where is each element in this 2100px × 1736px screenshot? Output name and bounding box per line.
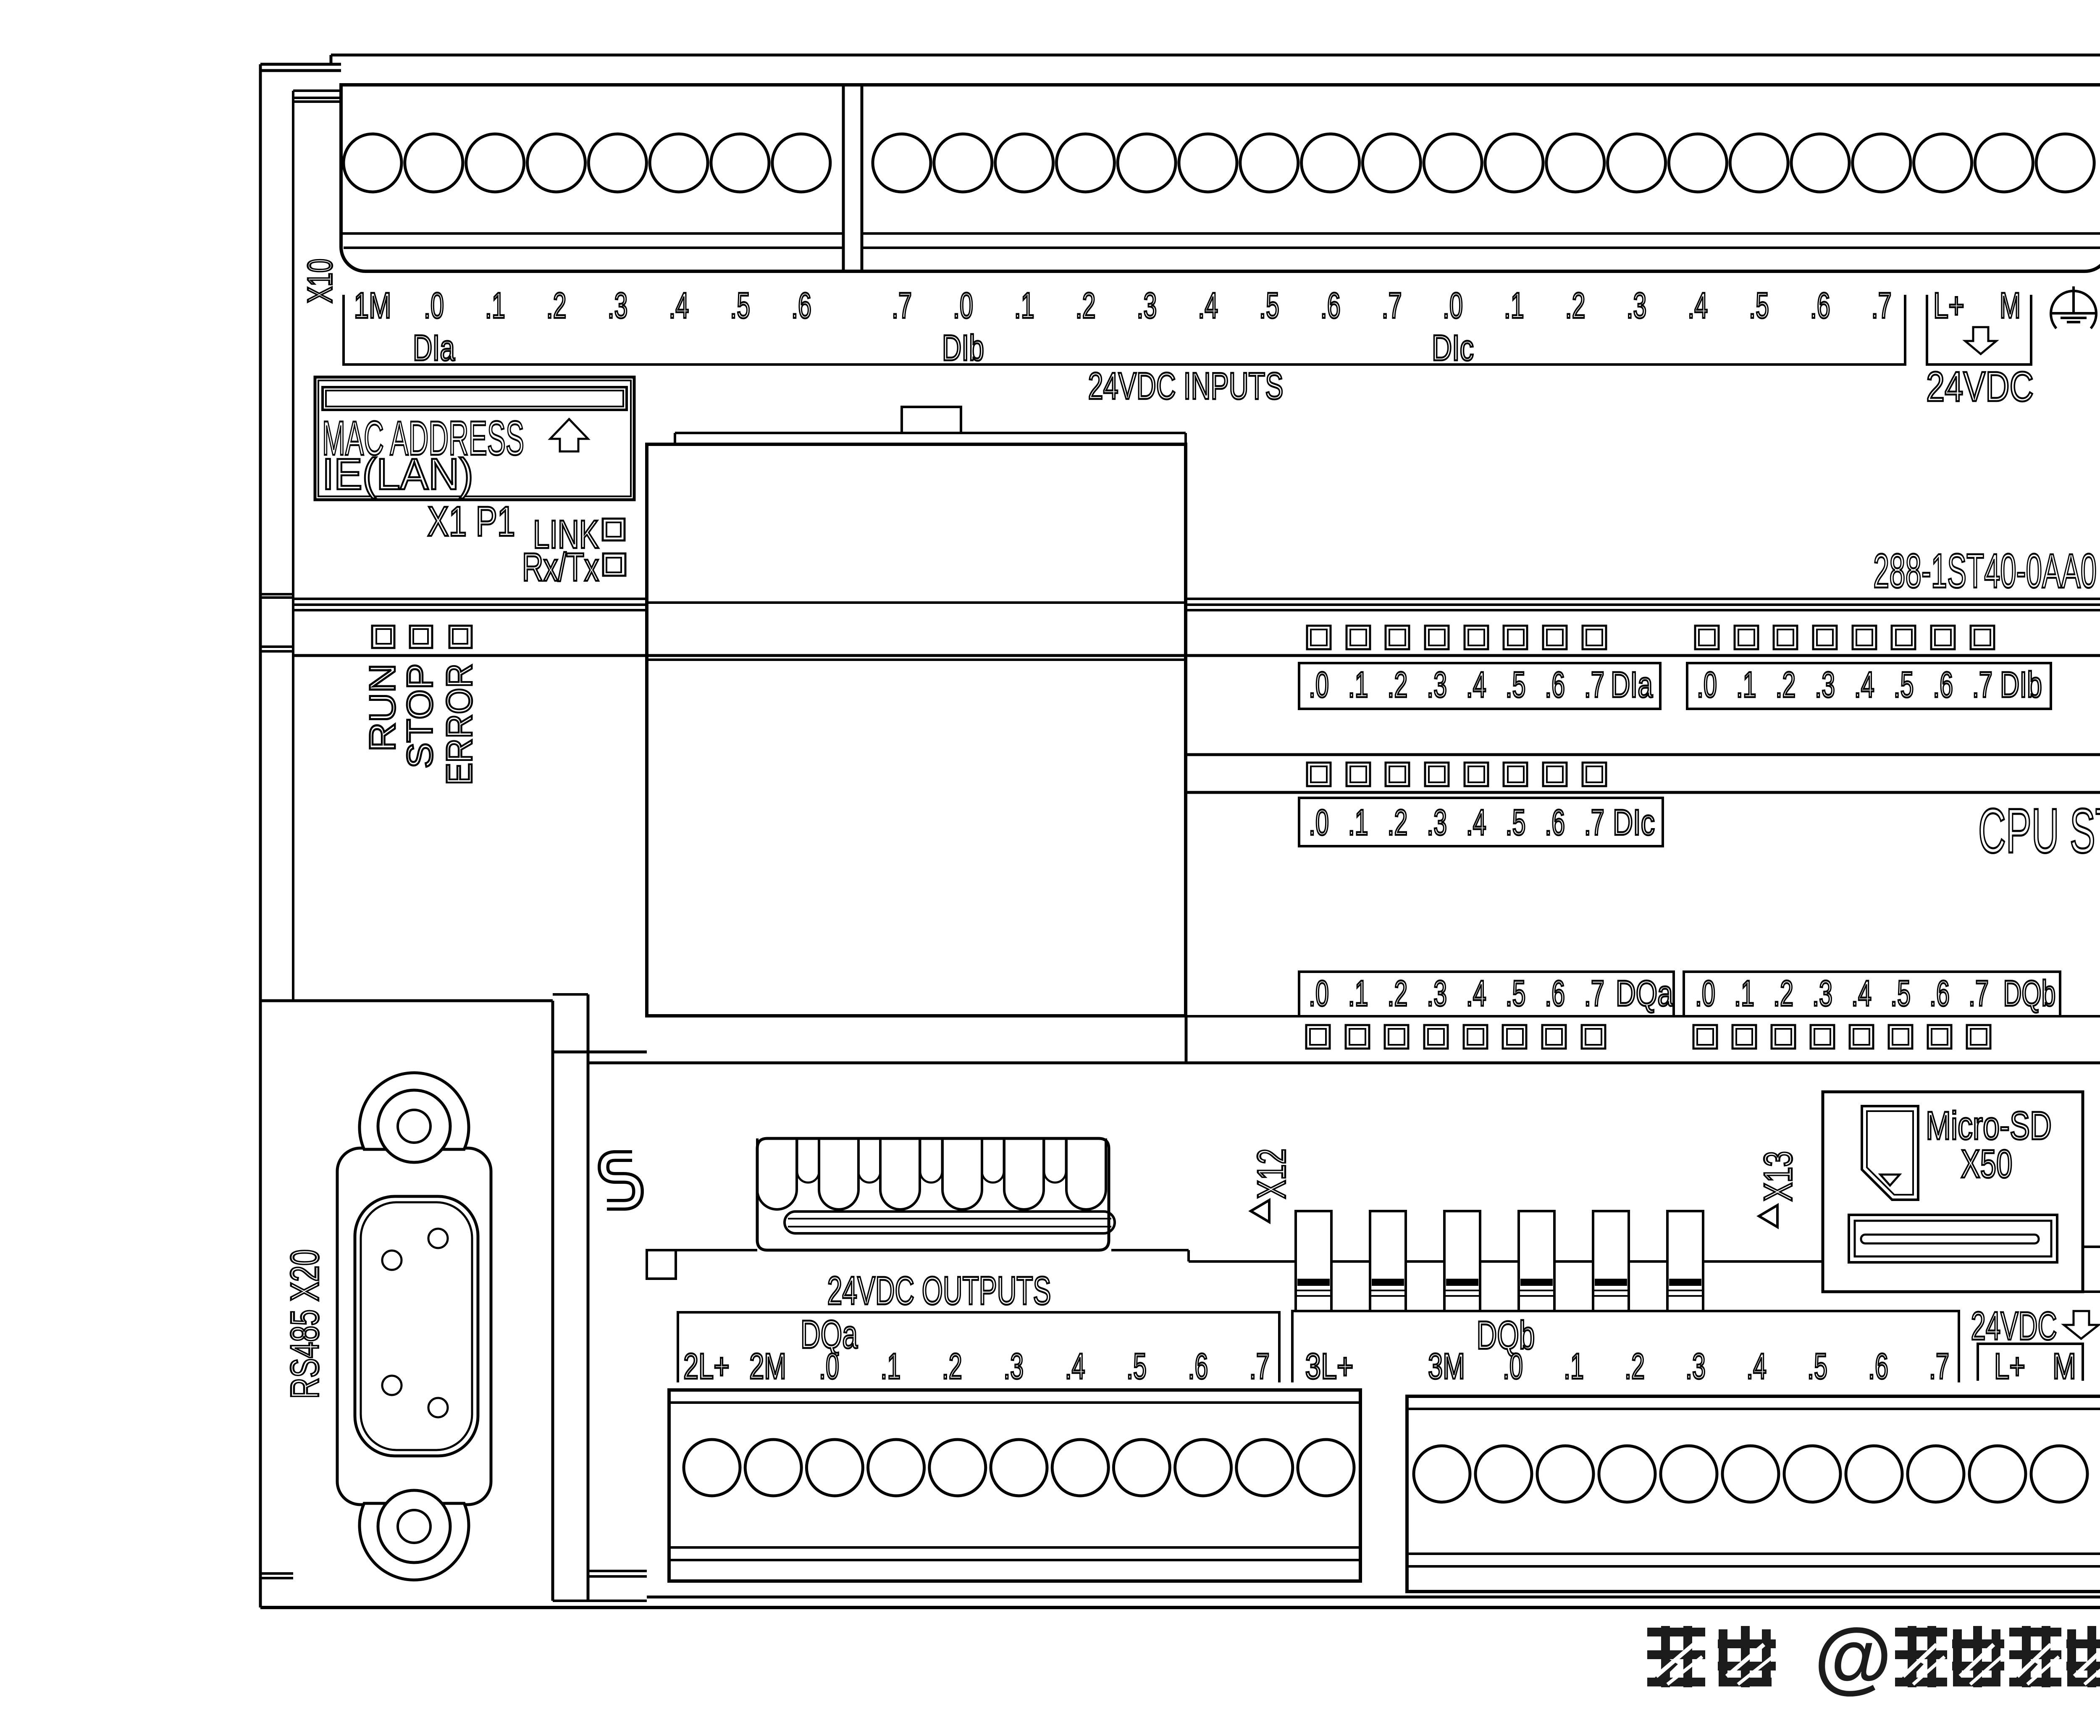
- svg-text:.6: .6: [1545, 665, 1565, 705]
- svg-text:.1: .1: [1348, 973, 1368, 1014]
- svg-text:.0: .0: [1503, 1346, 1523, 1387]
- svg-text:X10: X10: [300, 259, 339, 303]
- svg-text:.1: .1: [1348, 665, 1368, 705]
- svg-text:.6: .6: [1320, 286, 1341, 326]
- svg-text:CPU ST40: CPU ST40: [1978, 795, 2100, 866]
- svg-text:.0: .0: [1695, 973, 1715, 1014]
- svg-text:.3: .3: [1003, 1346, 1024, 1387]
- svg-text:.7: .7: [1584, 802, 1604, 843]
- svg-text:.2: .2: [1773, 973, 1793, 1014]
- svg-text:.2: .2: [1625, 1346, 1645, 1387]
- svg-text:.0: .0: [1443, 286, 1463, 326]
- svg-text:.3: .3: [1815, 665, 1835, 705]
- svg-text:.7: .7: [1584, 665, 1604, 705]
- svg-text:.2: .2: [546, 286, 567, 326]
- svg-text:.3: .3: [1685, 1346, 1706, 1387]
- svg-text:X1 P1: X1 P1: [428, 498, 515, 545]
- svg-text:.4: .4: [1466, 802, 1486, 843]
- svg-text:.7: .7: [1972, 665, 1992, 705]
- svg-text:.0: .0: [953, 286, 973, 326]
- svg-text:DIb: DIb: [2000, 665, 2042, 705]
- svg-text:X50: X50: [1961, 1142, 2013, 1186]
- svg-text:1M: 1M: [354, 286, 391, 326]
- svg-text:.6: .6: [1545, 973, 1565, 1014]
- svg-text:.2: .2: [1076, 286, 1096, 326]
- svg-text:.1: .1: [1348, 802, 1368, 843]
- svg-text:@: @: [1814, 1612, 1892, 1701]
- svg-text:.0: .0: [819, 1346, 839, 1387]
- svg-text:DIa: DIa: [1611, 665, 1653, 705]
- svg-text:.1: .1: [1014, 286, 1034, 326]
- svg-text:ERROR: ERROR: [439, 663, 480, 785]
- svg-text:STOP: STOP: [400, 663, 440, 768]
- svg-text:24VDC: 24VDC: [1926, 363, 2034, 410]
- svg-text:M: M: [2053, 1346, 2076, 1387]
- svg-text:.4: .4: [1688, 286, 1708, 326]
- svg-text:.6: .6: [1929, 973, 1950, 1014]
- svg-text:3M: 3M: [1428, 1346, 1465, 1387]
- svg-text:L+: L+: [1994, 1346, 2025, 1387]
- svg-text:.5: .5: [730, 286, 750, 326]
- svg-text:.1: .1: [880, 1346, 900, 1387]
- svg-text:.3: .3: [1427, 802, 1447, 843]
- svg-text:DQb: DQb: [2003, 973, 2056, 1014]
- svg-text:.3: .3: [1812, 973, 1832, 1014]
- svg-text:Rx/Tx: Rx/Tx: [522, 545, 599, 590]
- svg-text:DIc: DIc: [1613, 802, 1655, 843]
- svg-text:.5: .5: [1890, 973, 1911, 1014]
- svg-text:.3: .3: [1137, 286, 1157, 326]
- svg-text:.3: .3: [1427, 665, 1447, 705]
- svg-text:.1: .1: [1564, 1346, 1584, 1387]
- svg-text:.4: .4: [1198, 286, 1218, 326]
- svg-text:2L+: 2L+: [683, 1346, 730, 1387]
- svg-text:.7: .7: [1584, 973, 1604, 1014]
- svg-text:24VDC OUTPUTS: 24VDC OUTPUTS: [827, 1269, 1051, 1313]
- svg-text:.1: .1: [1736, 665, 1756, 705]
- svg-text:.4: .4: [1854, 665, 1874, 705]
- svg-text:X12: X12: [1249, 1149, 1294, 1199]
- svg-text:.4: .4: [1851, 973, 1872, 1014]
- svg-text:24VDC INPUTS: 24VDC INPUTS: [1088, 365, 1284, 407]
- svg-text:.6: .6: [1933, 665, 1953, 705]
- svg-text:DIb: DIb: [942, 328, 984, 368]
- svg-text:L+: L+: [1933, 286, 1964, 326]
- svg-text:.4: .4: [1466, 665, 1486, 705]
- svg-text:.3: .3: [1626, 286, 1646, 326]
- svg-text:.7: .7: [1249, 1346, 1270, 1387]
- svg-text:.0: .0: [1309, 973, 1329, 1014]
- svg-text:.7: .7: [892, 286, 912, 326]
- svg-text:.1: .1: [1734, 973, 1754, 1014]
- svg-text:.7: .7: [1382, 286, 1402, 326]
- svg-text:.6: .6: [791, 286, 811, 326]
- svg-text:.2: .2: [1775, 665, 1795, 705]
- svg-text:.7: .7: [1929, 1346, 1949, 1387]
- svg-text:.7: .7: [1969, 973, 1989, 1014]
- svg-text:.0: .0: [1309, 665, 1329, 705]
- svg-text:IE(LAN): IE(LAN): [322, 450, 473, 499]
- svg-text:.6: .6: [1810, 286, 1830, 326]
- svg-text:.6: .6: [1188, 1346, 1208, 1387]
- svg-text:M: M: [2000, 286, 2021, 326]
- svg-text:.5: .5: [1259, 286, 1279, 326]
- svg-text:.4: .4: [669, 286, 689, 326]
- svg-text:.5: .5: [1807, 1346, 1827, 1387]
- svg-text:.5: .5: [1749, 286, 1769, 326]
- svg-text:.6: .6: [1868, 1346, 1888, 1387]
- svg-text:.1: .1: [485, 286, 505, 326]
- svg-text:X13: X13: [1756, 1151, 1801, 1201]
- svg-text:.4: .4: [1466, 973, 1486, 1014]
- svg-text:RS485 X20: RS485 X20: [283, 1249, 327, 1399]
- svg-text:.2: .2: [1565, 286, 1585, 326]
- svg-text:24VDC: 24VDC: [1971, 1304, 2057, 1348]
- svg-text:.0: .0: [1309, 802, 1329, 843]
- svg-text:.2: .2: [1387, 665, 1407, 705]
- svg-text:.5: .5: [1126, 1346, 1147, 1387]
- svg-text:.1: .1: [1504, 286, 1524, 326]
- svg-text:.4: .4: [1065, 1346, 1085, 1387]
- svg-text:.2: .2: [942, 1346, 962, 1387]
- svg-text:.7: .7: [1872, 286, 1892, 326]
- svg-text:.6: .6: [1545, 802, 1565, 843]
- svg-text:DIa: DIa: [413, 328, 455, 368]
- svg-text:RUN: RUN: [362, 663, 403, 752]
- svg-text:2M: 2M: [749, 1346, 786, 1387]
- svg-text:DIc: DIc: [1432, 328, 1474, 368]
- svg-text:.0: .0: [424, 286, 444, 326]
- svg-text:.4: .4: [1746, 1346, 1767, 1387]
- svg-text:.5: .5: [1894, 665, 1914, 705]
- svg-text:.0: .0: [1697, 665, 1717, 705]
- svg-text:.5: .5: [1506, 802, 1526, 843]
- svg-text:.3: .3: [1427, 973, 1447, 1014]
- svg-text:.2: .2: [1387, 973, 1407, 1014]
- svg-text:.2: .2: [1387, 802, 1407, 843]
- svg-text:.3: .3: [607, 286, 627, 326]
- svg-text:.5: .5: [1506, 665, 1526, 705]
- svg-text:288-1ST40-0AA0: 288-1ST40-0AA0: [1873, 544, 2097, 598]
- svg-text:.5: .5: [1506, 973, 1526, 1014]
- svg-text:DQa: DQa: [1616, 973, 1673, 1014]
- svg-text:3L+: 3L+: [1305, 1346, 1354, 1387]
